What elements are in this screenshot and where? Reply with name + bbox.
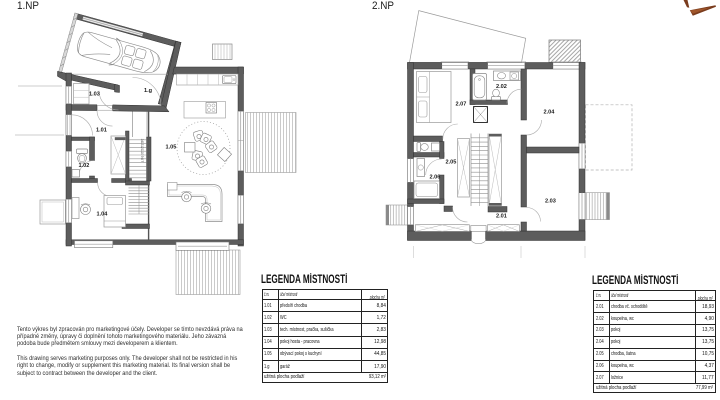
svg-text:2.07: 2.07 [456,102,467,108]
svg-text:2.05: 2.05 [446,160,457,166]
svg-text:1.04: 1.04 [97,212,109,218]
svg-text:2.06: 2.06 [430,175,441,181]
svg-text:2.01: 2.01 [496,214,507,220]
svg-text:2.04: 2.04 [544,110,556,116]
svg-text:1.01: 1.01 [96,128,107,134]
svg-text:2.03: 2.03 [545,199,556,205]
svg-text:1.03: 1.03 [89,92,100,98]
svg-text:2.02: 2.02 [496,84,507,90]
svg-text:1.g: 1.g [144,88,153,94]
svg-text:1.05: 1.05 [166,145,177,151]
svg-text:1.02: 1.02 [79,163,90,169]
svg-text:1413121110 9 8 7: 1413121110 9 8 7 [140,139,144,163]
